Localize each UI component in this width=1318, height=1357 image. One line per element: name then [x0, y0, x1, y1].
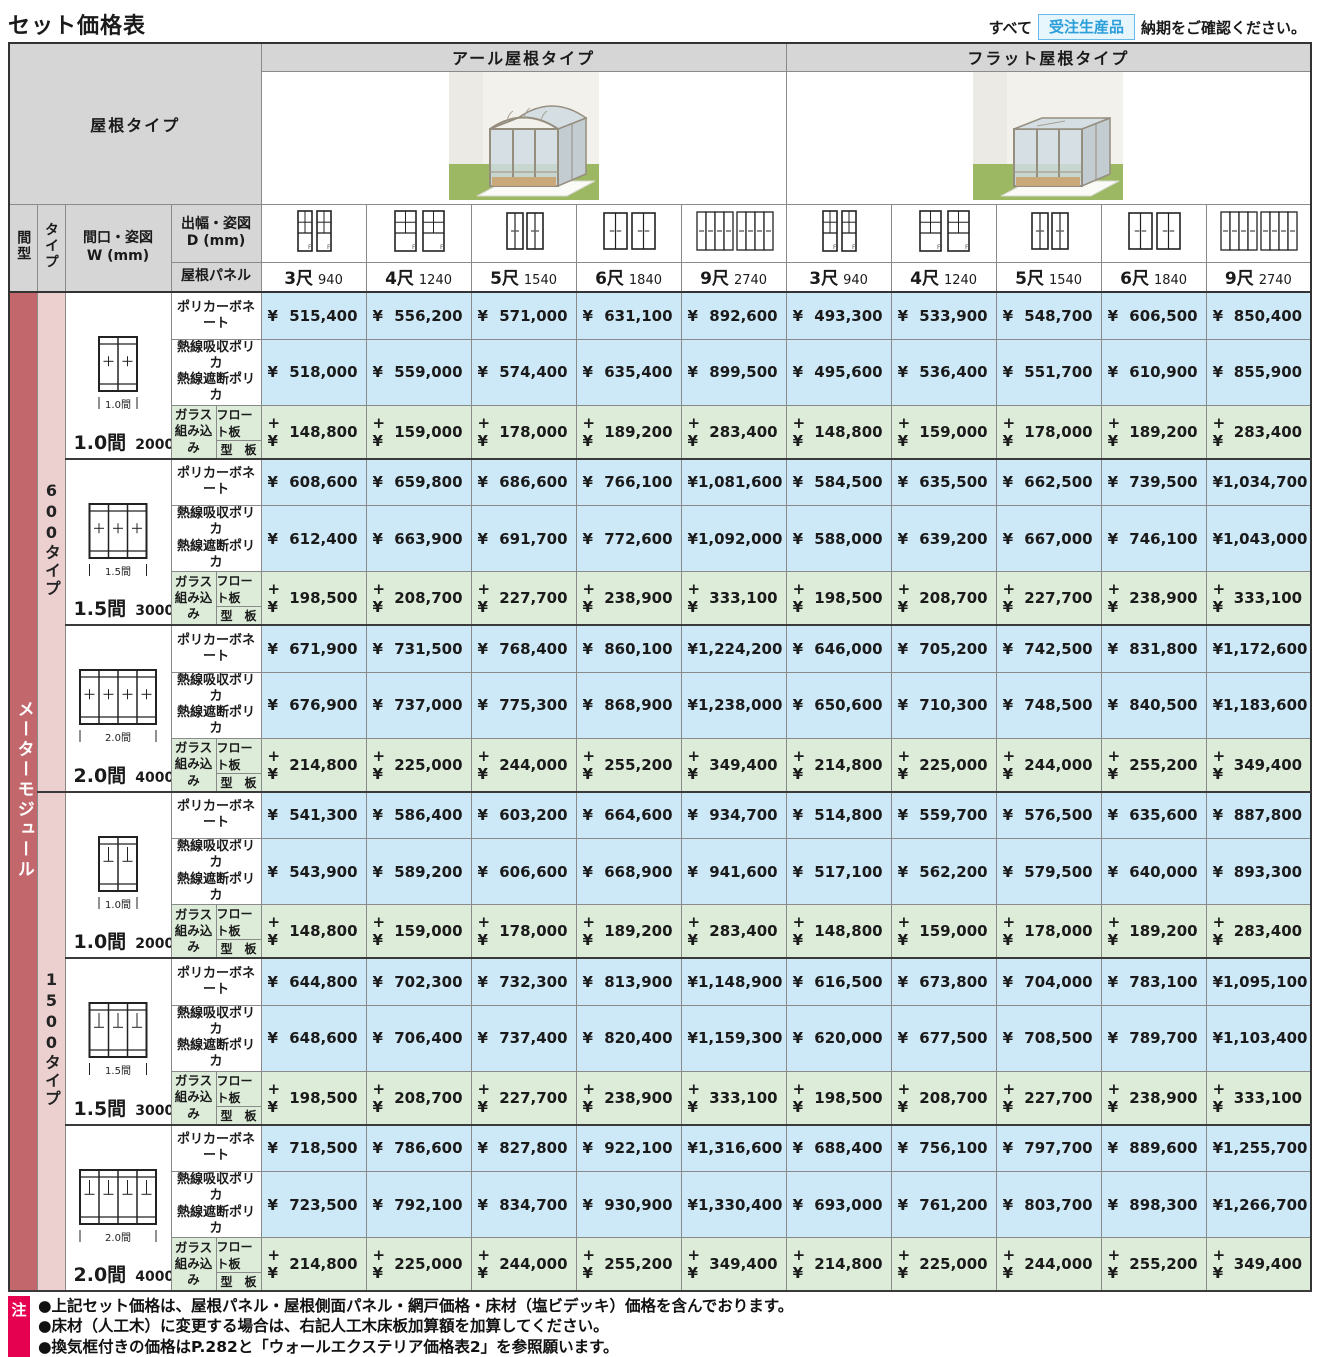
- currency-prefix: ¥: [1003, 1139, 1013, 1157]
- currency-prefix: +¥: [793, 747, 815, 783]
- price-cell-flat: ¥855,900: [1206, 339, 1311, 405]
- svg-text:F: F: [327, 244, 331, 251]
- price-cell-flat: ¥850,400: [1206, 292, 1311, 339]
- price-cell-flat: ¥1,043,000: [1206, 506, 1311, 572]
- note-item: ●換気框付きの価格はP.282と「ウォールエクステリア価格表2」を参照願います。: [38, 1337, 793, 1357]
- price-cell-arch: +¥349,400: [681, 1238, 786, 1292]
- currency-prefix: +¥: [898, 747, 920, 783]
- price-cell-arch: ¥608,600: [261, 459, 366, 506]
- price-value: 677,500: [919, 1029, 987, 1047]
- width-ken-label: 1.5間: [74, 1098, 127, 1120]
- price-value: 742,500: [1024, 640, 1092, 658]
- price-value: 635,500: [919, 473, 987, 491]
- size-mm-label: 1540: [524, 273, 557, 288]
- price-cell-arch: ¥1,316,600: [681, 1125, 786, 1172]
- product-image-cell-flat: [786, 71, 1311, 204]
- price-cell-arch: ¥574,400: [471, 339, 576, 405]
- size-shaku-label: 3尺: [284, 269, 313, 289]
- price-value: 789,700: [1129, 1029, 1197, 1047]
- currency-prefix: ¥: [793, 1029, 803, 1047]
- price-cell-flat: +¥159,000: [891, 905, 996, 959]
- roof-group-header: フラット屋根タイプ: [786, 43, 1311, 71]
- currency-prefix: ¥: [688, 863, 698, 881]
- currency-prefix: ¥: [793, 640, 803, 658]
- currency-prefix: +¥: [1108, 580, 1130, 616]
- price-value: 639,200: [919, 530, 987, 548]
- price-cell-arch: +¥227,700: [471, 572, 576, 626]
- price-cell-arch: ¥768,400: [471, 625, 576, 672]
- width-mm-label: 3000: [135, 603, 171, 619]
- price-cell-arch: +¥283,400: [681, 905, 786, 959]
- price-cell-arch: +¥255,200: [576, 738, 681, 792]
- price-cell-flat: ¥584,500: [786, 459, 891, 506]
- price-cell-flat: ¥576,500: [996, 792, 1101, 839]
- size-diagram-multi-icon: [681, 204, 786, 262]
- currency-prefix: ¥: [1108, 1196, 1118, 1214]
- price-value: 255,200: [1129, 756, 1197, 774]
- price-cell-flat: ¥588,000: [786, 506, 891, 572]
- currency-prefix: +¥: [583, 580, 605, 616]
- price-value: 635,400: [604, 363, 672, 381]
- price-cell-flat: +¥225,000: [891, 1238, 996, 1292]
- madori-module-cell: メーターモジュール: [9, 292, 37, 1291]
- panel-label-polycarbonate: ポリカーボネート: [171, 625, 261, 672]
- price-cell-arch: +¥214,800: [261, 1238, 366, 1292]
- price-value: 834,700: [499, 1196, 567, 1214]
- price-value: 671,900: [289, 640, 357, 658]
- glass-sub-labels: フロート板型 板: [216, 905, 261, 959]
- price-cell-arch: ¥892,600: [681, 292, 786, 339]
- price-value: 646,000: [814, 640, 882, 658]
- size-shaku-label: 4尺: [910, 269, 939, 289]
- currency-prefix: ¥: [268, 1139, 278, 1157]
- price-cell-arch: ¥603,200: [471, 792, 576, 839]
- size-shaku-label: 6尺: [595, 269, 624, 289]
- price-value: 693,000: [814, 1196, 882, 1214]
- price-value: 283,400: [1234, 922, 1302, 940]
- currency-prefix: ¥: [583, 530, 593, 548]
- size-diagram-dh-wide-icon: F F: [891, 204, 996, 262]
- price-value: 227,700: [499, 589, 567, 607]
- size-mm-label: 940: [843, 273, 868, 288]
- currency-prefix: +¥: [268, 580, 290, 616]
- currency-prefix: ¥: [1003, 696, 1013, 714]
- currency-prefix: ¥: [373, 363, 383, 381]
- note-item: ●床材（人工木）に変更する場合は、右記人工木床板加算額を加算してください。: [38, 1316, 793, 1336]
- price-value: 761,200: [919, 1196, 987, 1214]
- price-cell-flat: ¥739,500: [1101, 459, 1206, 506]
- currency-prefix: +¥: [583, 414, 605, 450]
- price-cell-flat: ¥1,103,400: [1206, 1005, 1311, 1071]
- currency-prefix: ¥: [1213, 640, 1223, 658]
- price-value: 178,000: [1024, 922, 1092, 940]
- price-cell-flat: +¥148,800: [786, 905, 891, 959]
- price-cell-flat: ¥1,266,700: [1206, 1172, 1311, 1238]
- width-mm-label: 2000: [135, 437, 171, 453]
- glass-kata-label: 型 板: [217, 1273, 261, 1290]
- product-photo-flat-roof: [973, 72, 1123, 200]
- price-cell-arch: ¥1,081,600: [681, 459, 786, 506]
- price-cell-flat: ¥533,900: [891, 292, 996, 339]
- price-value: 238,900: [1129, 1089, 1197, 1107]
- price-value: 756,100: [919, 1139, 987, 1157]
- width-label: 2.0間 4000: [74, 761, 172, 788]
- madori-header-label: 間型: [16, 230, 30, 262]
- price-value: 533,900: [919, 307, 987, 325]
- currency-prefix: +¥: [898, 1080, 920, 1116]
- currency-prefix: ¥: [478, 530, 488, 548]
- price-cell-arch: +¥178,000: [471, 405, 576, 459]
- price-value: 1,255,700: [1223, 1139, 1307, 1157]
- price-value: 225,000: [394, 756, 462, 774]
- price-value: 214,800: [289, 756, 357, 774]
- currency-prefix: ¥: [1003, 806, 1013, 824]
- price-cell-arch: ¥1,238,000: [681, 672, 786, 738]
- price-value: 659,800: [394, 473, 462, 491]
- currency-prefix: +¥: [793, 1246, 815, 1282]
- price-cell-flat: +¥214,800: [786, 1238, 891, 1292]
- price-cell-arch: ¥702,300: [366, 958, 471, 1005]
- currency-prefix: +¥: [688, 913, 710, 949]
- price-value: 238,900: [604, 1089, 672, 1107]
- currency-prefix: ¥: [1003, 863, 1013, 881]
- price-cell-arch: ¥644,800: [261, 958, 366, 1005]
- price-value: 663,900: [394, 530, 462, 548]
- price-value: 686,600: [499, 473, 567, 491]
- currency-prefix: +¥: [1213, 414, 1234, 450]
- panel-label-polycarbonate: ポリカーボネート: [171, 958, 261, 1005]
- price-value: 198,500: [814, 1089, 882, 1107]
- price-value: 556,200: [394, 307, 462, 325]
- price-cell-flat: +¥189,200: [1101, 405, 1206, 459]
- price-value: 517,100: [814, 863, 882, 881]
- currency-prefix: +¥: [268, 1246, 290, 1282]
- width-label: 1.0間 2000: [74, 927, 172, 954]
- glass-float-label: フロート板: [217, 1238, 261, 1273]
- width-mm-label: 4000: [135, 770, 171, 786]
- price-cell-flat: ¥548,700: [996, 292, 1101, 339]
- price-cell-flat: +¥214,800: [786, 738, 891, 792]
- price-value: 571,000: [499, 307, 567, 325]
- currency-prefix: ¥: [793, 806, 803, 824]
- product-photo-arch-roof: [449, 72, 599, 200]
- price-value: 495,600: [814, 363, 882, 381]
- currency-prefix: ¥: [898, 473, 908, 491]
- price-value: 704,000: [1024, 973, 1092, 991]
- panel-label-glass: ガラス 組み込み: [171, 1238, 216, 1292]
- price-value: 731,500: [394, 640, 462, 658]
- currency-prefix: ¥: [268, 1196, 278, 1214]
- currency-prefix: ¥: [898, 530, 908, 548]
- price-cell-arch: ¥589,200: [366, 839, 471, 905]
- price-cell-flat: +¥225,000: [891, 738, 996, 792]
- price-value: 238,900: [604, 589, 672, 607]
- currency-prefix: +¥: [583, 747, 605, 783]
- currency-prefix: +¥: [373, 414, 395, 450]
- price-value: 227,700: [499, 1089, 567, 1107]
- price-value: 899,500: [709, 363, 777, 381]
- size-mm-label: 1840: [629, 273, 662, 288]
- price-value: 650,600: [814, 696, 882, 714]
- svg-text:1.5間: 1.5間: [105, 566, 131, 578]
- currency-prefix: +¥: [268, 747, 290, 783]
- size-diagram-dh-narrow-icon: F F: [261, 204, 366, 262]
- currency-prefix: ¥: [688, 1196, 698, 1214]
- currency-prefix: ¥: [268, 806, 278, 824]
- price-value: 1,095,100: [1223, 973, 1307, 991]
- price-value: 562,200: [919, 863, 987, 881]
- price-value: 667,000: [1024, 530, 1092, 548]
- price-value: 227,700: [1024, 589, 1092, 607]
- price-cell-flat: ¥742,500: [996, 625, 1101, 672]
- price-value: 705,200: [919, 640, 987, 658]
- price-cell-arch: ¥766,100: [576, 459, 681, 506]
- price-value: 662,500: [1024, 473, 1092, 491]
- glass-float-label: フロート板: [217, 905, 261, 940]
- price-cell-arch: ¥786,600: [366, 1125, 471, 1172]
- price-value: 541,300: [289, 806, 357, 824]
- glass-sub-labels: フロート板型 板: [216, 405, 261, 459]
- price-cell-arch: ¥659,800: [366, 459, 471, 506]
- price-value: 198,500: [289, 1089, 357, 1107]
- price-cell-arch: ¥732,300: [471, 958, 576, 1005]
- price-cell-flat: ¥746,100: [1101, 506, 1206, 572]
- price-cell-arch: +¥208,700: [366, 572, 471, 626]
- currency-prefix: +¥: [793, 1080, 815, 1116]
- currency-prefix: +¥: [1003, 913, 1025, 949]
- size-label-cell: 9尺2740: [1206, 262, 1311, 292]
- price-value: 548,700: [1024, 307, 1092, 325]
- panel-label-polycarbonate: ポリカーボネート: [171, 1125, 261, 1172]
- size-diagram-slider-wide-icon: [1101, 204, 1206, 262]
- svg-text:1.5間: 1.5間: [105, 1065, 131, 1077]
- panel-label-polycarbonate: ポリカーボネート: [171, 292, 261, 339]
- price-value: 732,300: [499, 973, 567, 991]
- price-value: 813,900: [604, 973, 672, 991]
- price-value: 283,400: [1234, 423, 1302, 441]
- price-cell-flat: ¥688,400: [786, 1125, 891, 1172]
- price-value: 238,900: [1129, 589, 1197, 607]
- currency-prefix: +¥: [1003, 1246, 1025, 1282]
- price-cell-flat: ¥840,500: [1101, 672, 1206, 738]
- price-value: 159,000: [394, 423, 462, 441]
- size-shaku-label: 5尺: [1015, 269, 1044, 289]
- svg-text:2.0間: 2.0間: [105, 732, 131, 744]
- price-value: 208,700: [919, 1089, 987, 1107]
- price-value: 612,400: [289, 530, 357, 548]
- price-cell-arch: ¥772,600: [576, 506, 681, 572]
- width-ken-label: 2.0間: [74, 1264, 127, 1286]
- currency-prefix: ¥: [1003, 473, 1013, 491]
- price-cell-flat: +¥255,200: [1101, 738, 1206, 792]
- currency-prefix: +¥: [1213, 580, 1234, 616]
- panel-label-heat-poly: 熱線吸収ポリカ 熱線遮断ポリカ: [171, 339, 261, 405]
- currency-prefix: ¥: [688, 363, 698, 381]
- price-value: 283,400: [709, 423, 777, 441]
- currency-prefix: ¥: [583, 863, 593, 881]
- price-value: 1,183,600: [1223, 696, 1307, 714]
- price-cell-arch: ¥731,500: [366, 625, 471, 672]
- price-value: 214,800: [814, 756, 882, 774]
- currency-prefix: ¥: [688, 973, 698, 991]
- price-value: 514,800: [814, 806, 882, 824]
- price-value: 588,000: [814, 530, 882, 548]
- price-cell-flat: ¥1,172,600: [1206, 625, 1311, 672]
- price-value: 1,330,400: [698, 1196, 782, 1214]
- price-cell-arch: ¥663,900: [366, 506, 471, 572]
- currency-prefix: ¥: [1108, 806, 1118, 824]
- currency-prefix: ¥: [478, 307, 488, 325]
- price-value: 831,800: [1129, 640, 1197, 658]
- currency-prefix: +¥: [268, 414, 290, 450]
- currency-prefix: +¥: [478, 1246, 500, 1282]
- price-cell-arch: +¥244,000: [471, 738, 576, 792]
- price-cell-arch: ¥834,700: [471, 1172, 576, 1238]
- price-cell-flat: +¥227,700: [996, 572, 1101, 626]
- currency-prefix: ¥: [268, 1029, 278, 1047]
- currency-prefix: ¥: [793, 863, 803, 881]
- size-diagram-dh-wide-icon: F F: [366, 204, 471, 262]
- price-value: 840,500: [1129, 696, 1197, 714]
- price-cell-arch: +¥255,200: [576, 1238, 681, 1292]
- price-cell-flat: ¥551,700: [996, 339, 1101, 405]
- size-shaku-label: 9尺: [700, 269, 729, 289]
- price-cell-arch: +¥333,100: [681, 1071, 786, 1125]
- order-note: すべて 受注生産品 納期をご確認ください。: [989, 14, 1310, 40]
- svg-text:F: F: [833, 244, 837, 251]
- madori-header-cell: 間型: [9, 204, 37, 292]
- width-label: 1.5間 3000: [74, 594, 172, 621]
- currency-prefix: ¥: [478, 863, 488, 881]
- price-value: 255,200: [1129, 1255, 1197, 1273]
- price-cell-flat: +¥159,000: [891, 405, 996, 459]
- price-value: 159,000: [919, 922, 987, 940]
- size-shaku-label: 5尺: [490, 269, 519, 289]
- price-value: 668,900: [604, 863, 672, 881]
- size-label-cell: 4尺1240: [366, 262, 471, 292]
- currency-prefix: ¥: [268, 640, 278, 658]
- price-value: 737,000: [394, 696, 462, 714]
- price-value: 1,159,300: [698, 1029, 782, 1047]
- price-cell-flat: ¥761,200: [891, 1172, 996, 1238]
- price-cell-arch: +¥208,700: [366, 1071, 471, 1125]
- price-cell-flat: +¥349,400: [1206, 738, 1311, 792]
- currency-prefix: +¥: [1108, 1080, 1130, 1116]
- size-shaku-label: 6尺: [1120, 269, 1149, 289]
- set-price-table: 屋根タイプアール屋根タイプフラット屋根タイプ 間型タイプ間口・姿図 W (mm)…: [8, 42, 1312, 1292]
- currency-prefix: ¥: [688, 530, 698, 548]
- order-note-prefix: すべて: [989, 17, 1032, 38]
- price-cell-flat: ¥562,200: [891, 839, 996, 905]
- panel-label-heat-poly: 熱線吸収ポリカ 熱線遮断ポリカ: [171, 506, 261, 572]
- price-cell-arch: +¥189,200: [576, 405, 681, 459]
- price-cell-flat: +¥349,400: [1206, 1238, 1311, 1292]
- price-cell-flat: ¥889,600: [1101, 1125, 1206, 1172]
- price-value: 208,700: [919, 589, 987, 607]
- currency-prefix: +¥: [1003, 414, 1025, 450]
- currency-prefix: +¥: [1108, 747, 1130, 783]
- width-elevation-icon: 2.0間: [68, 731, 168, 750]
- glass-float-label: フロート板: [217, 739, 261, 774]
- price-value: 1,266,700: [1223, 1196, 1307, 1214]
- currency-prefix: ¥: [373, 696, 383, 714]
- price-value: 1,148,900: [698, 973, 782, 991]
- currency-prefix: +¥: [583, 1246, 605, 1282]
- price-cell-flat: ¥1,095,100: [1206, 958, 1311, 1005]
- width-mm-label: 4000: [135, 1269, 171, 1285]
- price-cell-arch: ¥686,600: [471, 459, 576, 506]
- width-elevation-icon: 1.5間: [68, 565, 168, 584]
- currency-prefix: ¥: [373, 473, 383, 491]
- price-cell-flat: +¥148,800: [786, 405, 891, 459]
- currency-prefix: +¥: [478, 580, 500, 616]
- currency-prefix: +¥: [373, 1246, 395, 1282]
- price-value: 198,500: [289, 589, 357, 607]
- price-value: 1,238,000: [698, 696, 782, 714]
- depth-header-cell: 出幅・姿図 D (mm): [171, 204, 261, 262]
- currency-prefix: ¥: [1108, 363, 1118, 381]
- note-item: ●上記セット価格は、屋根パネル・屋根側面パネル・網戸価格・床材（塩ビデッキ）価格…: [38, 1296, 793, 1316]
- price-cell-arch: ¥541,300: [261, 792, 366, 839]
- price-cell-arch: ¥631,100: [576, 292, 681, 339]
- price-cell-flat: ¥667,000: [996, 506, 1101, 572]
- currency-prefix: ¥: [1213, 806, 1223, 824]
- price-value: 860,100: [604, 640, 672, 658]
- price-value: 584,500: [814, 473, 882, 491]
- price-cell-arch: ¥706,400: [366, 1005, 471, 1071]
- width-mm-label: 2000: [135, 936, 171, 952]
- currency-prefix: ¥: [268, 307, 278, 325]
- price-cell-flat: ¥789,700: [1101, 1005, 1206, 1071]
- price-cell-flat: ¥559,700: [891, 792, 996, 839]
- price-cell-flat: +¥333,100: [1206, 1071, 1311, 1125]
- price-value: 225,000: [919, 756, 987, 774]
- size-label-cell: 3尺940: [261, 262, 366, 292]
- currency-prefix: +¥: [688, 580, 710, 616]
- price-cell-flat: ¥493,300: [786, 292, 891, 339]
- width-ken-label: 1.0間: [74, 931, 127, 953]
- price-value: 664,600: [604, 806, 672, 824]
- type-section-label: 600タイプ: [43, 481, 59, 598]
- price-value: 349,400: [1234, 756, 1302, 774]
- currency-prefix: ¥: [1108, 307, 1118, 325]
- price-cell-flat: ¥662,500: [996, 459, 1101, 506]
- size-label-cell: 5尺1540: [471, 262, 576, 292]
- price-cell-flat: ¥887,800: [1206, 792, 1311, 839]
- price-value: 159,000: [919, 423, 987, 441]
- currency-prefix: ¥: [1213, 1029, 1223, 1047]
- currency-prefix: ¥: [688, 1029, 698, 1047]
- price-value: 178,000: [1024, 423, 1092, 441]
- currency-prefix: +¥: [688, 1246, 710, 1282]
- glass-float-label: フロート板: [217, 1072, 261, 1107]
- currency-prefix: +¥: [1003, 1080, 1025, 1116]
- currency-prefix: ¥: [1108, 973, 1118, 991]
- currency-prefix: +¥: [1213, 1246, 1234, 1282]
- price-cell-arch: +¥189,200: [576, 905, 681, 959]
- currency-prefix: ¥: [268, 863, 278, 881]
- currency-prefix: ¥: [478, 473, 488, 491]
- currency-prefix: ¥: [478, 1139, 488, 1157]
- price-value: 748,500: [1024, 696, 1092, 714]
- price-value: 178,000: [499, 922, 567, 940]
- size-diagram-dh-narrow-icon: F F: [786, 204, 891, 262]
- currency-prefix: ¥: [373, 1196, 383, 1214]
- currency-prefix: ¥: [1003, 363, 1013, 381]
- panel-label-heat-poly: 熱線吸収ポリカ 熱線遮断ポリカ: [171, 672, 261, 738]
- price-cell-flat: ¥705,200: [891, 625, 996, 672]
- price-cell-arch: ¥571,000: [471, 292, 576, 339]
